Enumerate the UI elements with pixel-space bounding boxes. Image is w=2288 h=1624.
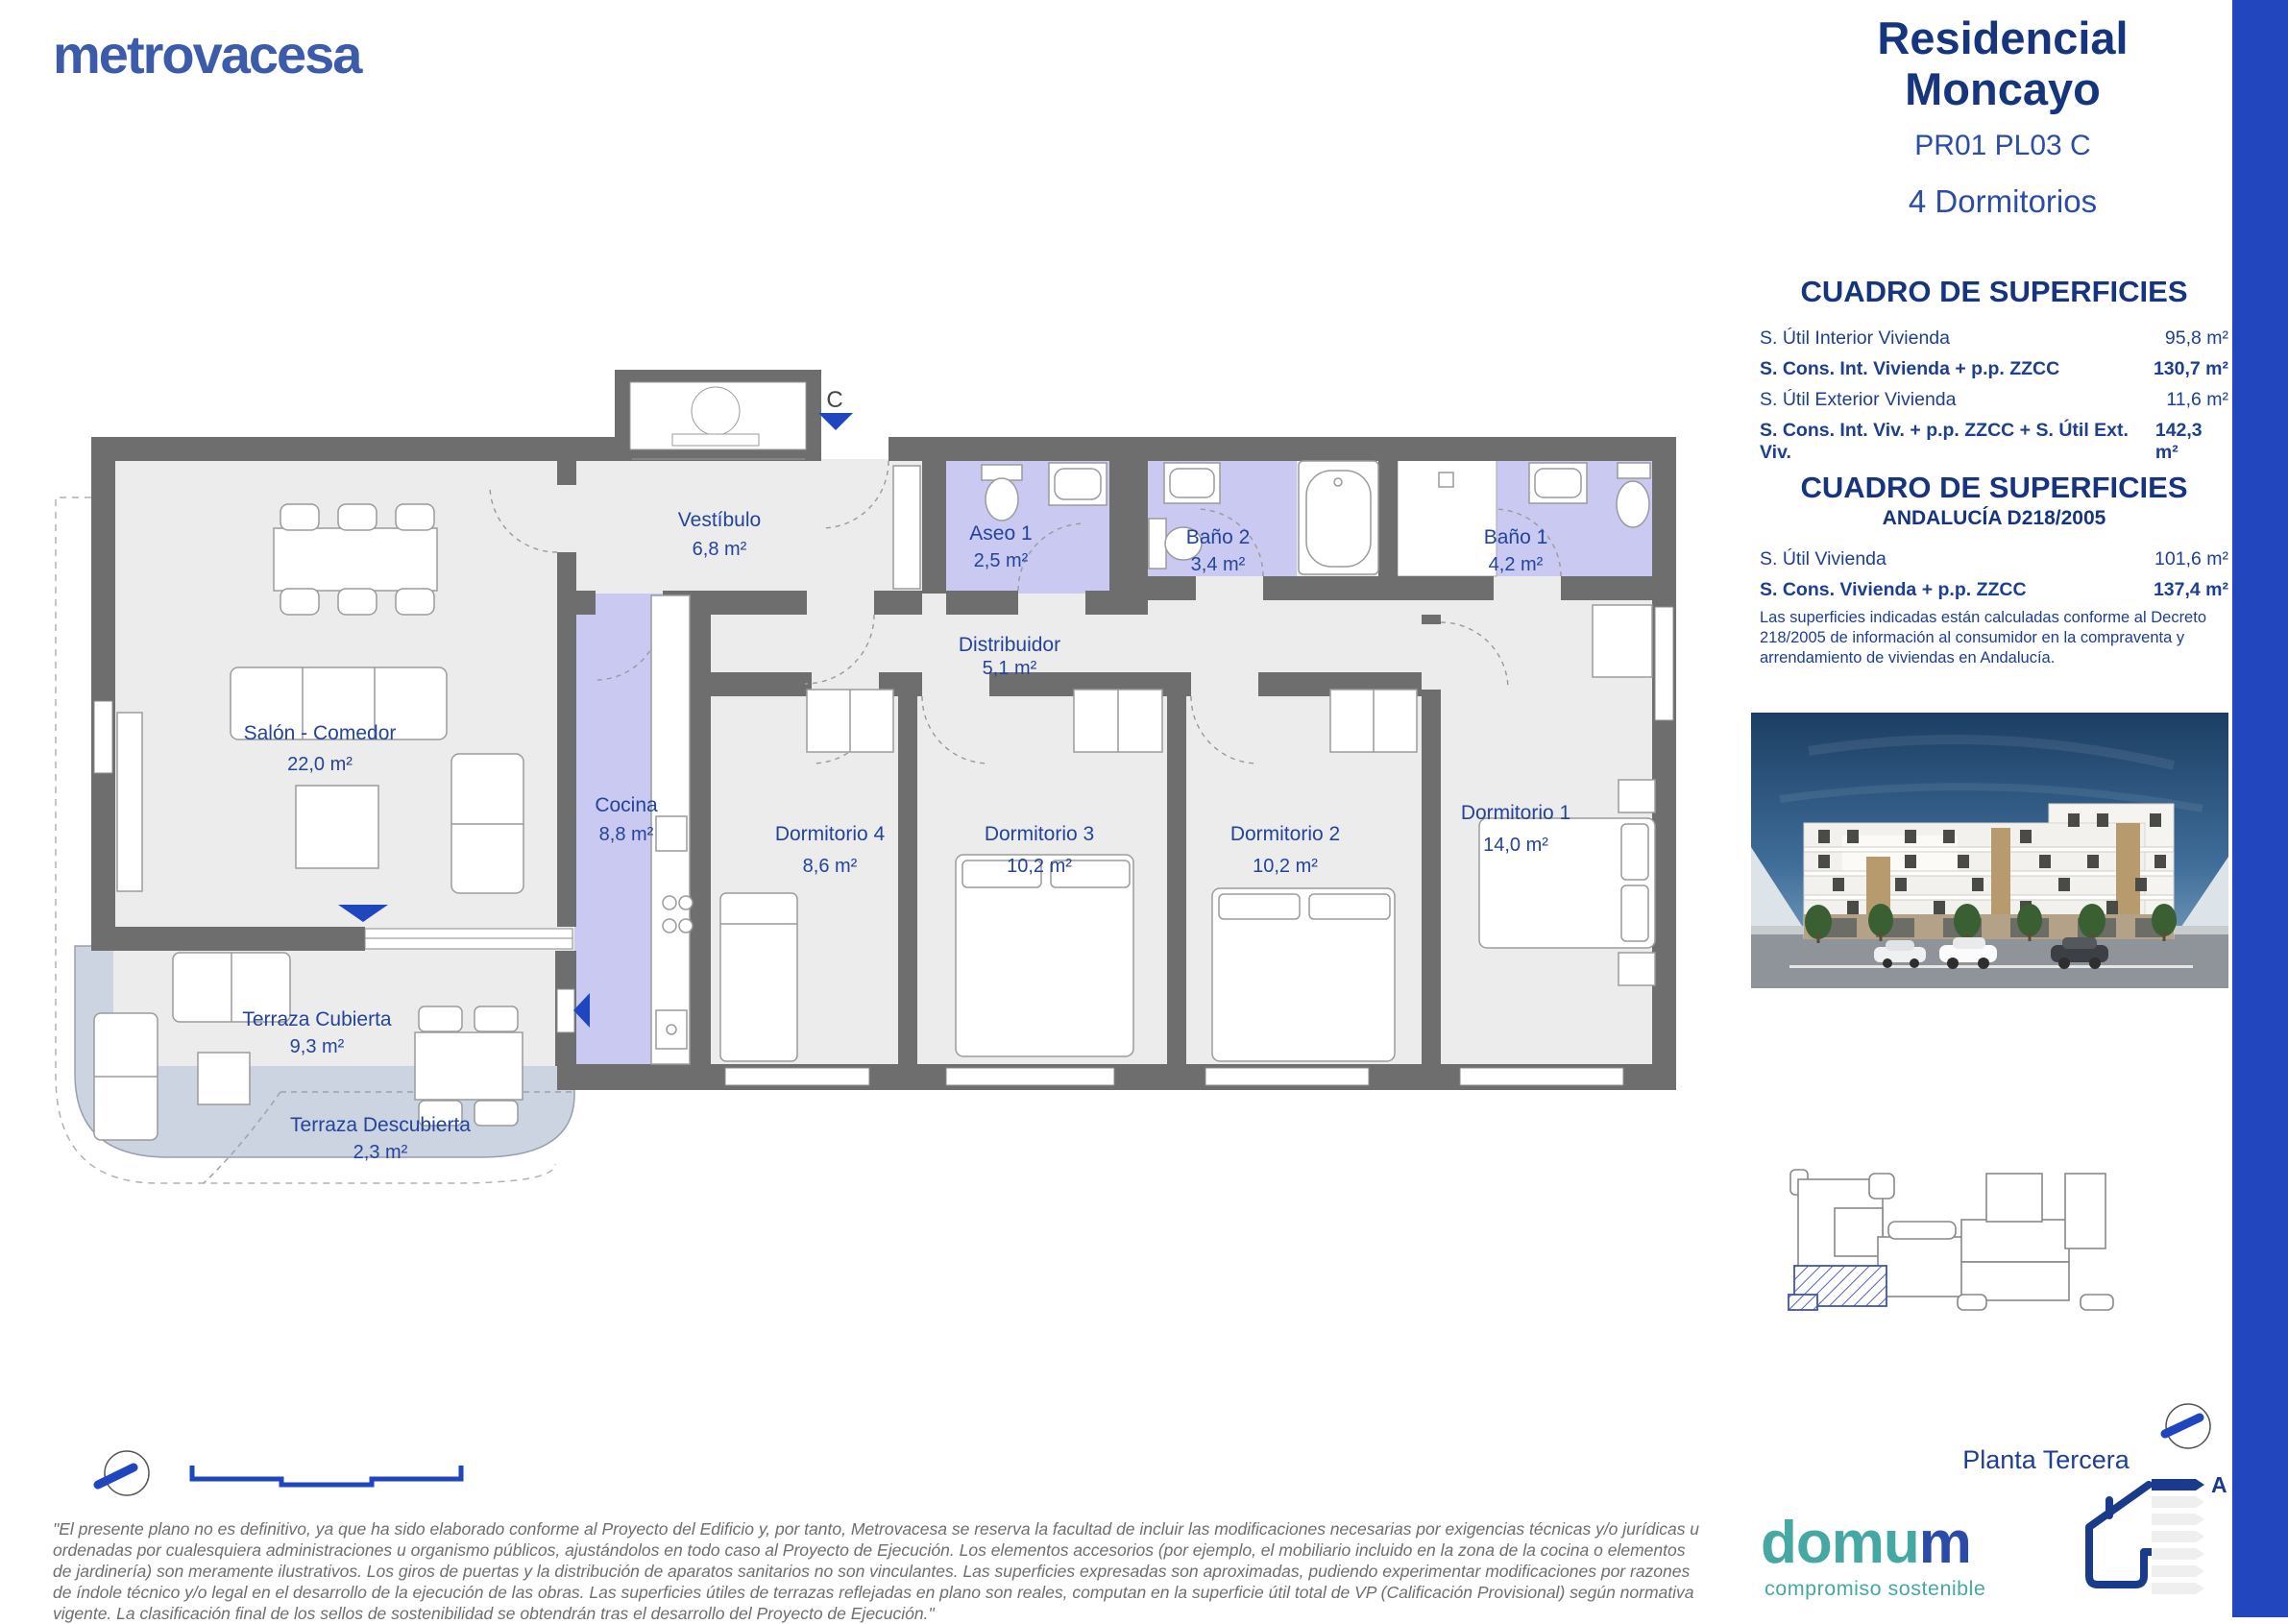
decree-note: Las superficies indicadas están calculad… [1760, 608, 2228, 668]
page-title: Residencial Moncayo [1777, 13, 2228, 114]
room-area-bano2: 3,4 m² [1191, 554, 1246, 575]
room-area-dorm3: 10,2 m² [1007, 856, 1072, 877]
row-value: 101,6 m² [2154, 548, 2228, 570]
current-unit-stub [1789, 1295, 1817, 1310]
entrance-arrow-icon [818, 413, 853, 430]
domum-logo: domum compromiso sostenible [1761, 1514, 2010, 1601]
domum-tagline: compromiso sostenible [1765, 1577, 2010, 1601]
surface-table-andalucia: CUADRO DE SUPERFICIES ANDALUCÍA D218/200… [1760, 471, 2228, 668]
room-area-dorm1: 14,0 m² [1483, 835, 1548, 856]
metrovacesa-logo: metrovacesa [53, 23, 360, 85]
surface-table-title: CUADRO DE SUPERFICIES [1760, 471, 2228, 505]
energy-rating-icon: A [2065, 1467, 2267, 1612]
domum-teal-part: domu [1761, 1510, 1919, 1576]
room-label-distribuidor: Distribuidor [959, 634, 1060, 656]
table-row: S. Cons. Int. Vivienda + p.p. ZZCC 130,7… [1760, 353, 2228, 384]
row-value: 137,4 m² [2154, 579, 2228, 601]
room-label-cocina: Cocina [595, 794, 658, 816]
room-label-dorm3: Dormitorio 3 [985, 823, 1094, 845]
room-label-vestibulo: Vestíbulo [678, 509, 761, 531]
room-label-dorm4: Dormitorio 4 [775, 823, 886, 845]
room-label-terraza-descubierta: Terraza Descubierta [290, 1114, 471, 1136]
washing-machine-icon [692, 387, 740, 435]
energy-rating-letter: A [2211, 1472, 2227, 1497]
room-area-aseo1: 2,5 m² [974, 550, 1029, 571]
room-label-aseo1: Aseo 1 [969, 522, 1032, 545]
table-row: S. Útil Vivienda 101,6 m² [1760, 544, 2228, 574]
row-label: S. Cons. Int. Viv. + p.p. ZZCC + S. Útil… [1760, 420, 2155, 464]
row-label: S. Cons. Int. Vivienda + p.p. ZZCC [1760, 358, 2059, 380]
entrance-letter: C [826, 387, 842, 413]
legal-disclaimer: "El presente plano no es definitivo, ya … [53, 1519, 1707, 1624]
table-row: S. Cons. Int. Viv. + p.p. ZZCC + S. Útil… [1760, 415, 2228, 468]
room-label-bano2: Baño 2 [1186, 526, 1251, 548]
table-row: S. Cons. Vivienda + p.p. ZZCC 137,4 m² [1760, 574, 2228, 605]
room-area-distribuidor: 5,1 m² [983, 658, 1037, 679]
room-area-dorm4: 8,6 m² [803, 856, 858, 877]
sheet-header: Residencial Moncayo PR01 PL03 C 4 Dormit… [1777, 13, 2228, 220]
key-plan [1777, 1162, 2180, 1383]
room-label-dorm1: Dormitorio 1 [1461, 802, 1570, 824]
row-value: 142,3 m² [2155, 420, 2228, 464]
room-area-vestibulo: 6,8 m² [693, 539, 747, 560]
room-label-terraza-cubierta: Terraza Cubierta [242, 1008, 392, 1030]
room-area-cocina: 8,8 m² [599, 824, 654, 845]
row-value: 130,7 m² [2154, 358, 2228, 380]
room-area-terraza-descubierta: 2,3 m² [353, 1142, 408, 1163]
row-label: S. Útil Interior Vivienda [1760, 327, 1950, 350]
room-label-dorm2: Dormitorio 2 [1230, 823, 1340, 845]
row-label: S. Cons. Vivienda + p.p. ZZCC [1760, 579, 2027, 601]
floor-plan: C Salón - Comedor 22,0 m² Cocina 8,8 m² … [29, 363, 1700, 1208]
room-area-bano1: 4,2 m² [1489, 554, 1544, 575]
row-value: 95,8 m² [2165, 327, 2228, 350]
surface-table-title: CUADRO DE SUPERFICIES [1760, 275, 2228, 309]
table-row: S. Útil Exterior Vivienda 11,6 m² [1760, 384, 2228, 415]
compass-icon [2152, 1391, 2225, 1464]
washer-base [672, 434, 759, 446]
room-area-salon: 22,0 m² [287, 754, 353, 775]
row-label: S. Útil Vivienda [1760, 548, 1886, 570]
energy-bars [2152, 1479, 2204, 1594]
unit-code: PR01 PL03 C [1777, 130, 2228, 162]
row-value: 11,6 m² [2166, 389, 2228, 411]
domum-blue-part: m [1919, 1510, 1971, 1576]
scale-bar [181, 1452, 478, 1494]
room-label-salon: Salón - Comedor [244, 722, 397, 744]
surface-table-general: CUADRO DE SUPERFICIES S. Útil Interior V… [1760, 275, 2228, 468]
compass-icon-bottom [88, 1438, 167, 1515]
unit-subtitle: 4 Dormitorios [1777, 183, 2228, 220]
title-line1: Residencial [1777, 13, 2228, 64]
table-row: S. Útil Interior Vivienda 95,8 m² [1760, 323, 2228, 353]
title-line2: Moncayo [1777, 64, 2228, 115]
room-area-terraza-cubierta: 9,3 m² [290, 1036, 345, 1057]
surface-table-subtitle: ANDALUCÍA D218/2005 [1760, 507, 2228, 530]
page-edge-bar [2232, 0, 2288, 1617]
row-label: S. Útil Exterior Vivienda [1760, 389, 1956, 411]
room-area-dorm2: 10,2 m² [1253, 856, 1318, 877]
room-label-bano1: Baño 1 [1484, 526, 1548, 548]
building-render-image [1751, 713, 2228, 988]
